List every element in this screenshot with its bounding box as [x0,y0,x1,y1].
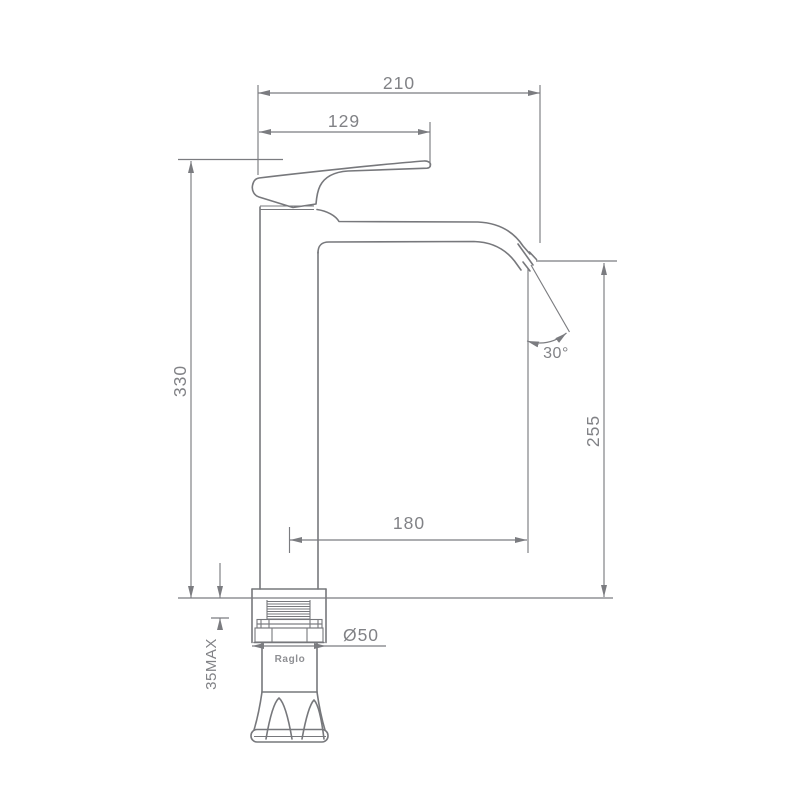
dim-label-210: 210 [383,73,415,93]
faucet-outline: Raglo [251,161,537,742]
dimension-spout-height: 255 [536,261,617,597]
spout-tip-endcap [530,252,537,260]
dimension-total-height: 330 [170,160,283,599]
crown-arch-right [302,700,324,739]
dimension-max-mount-thickness: 35MAX [203,563,229,690]
dimension-spout-angle: 30° [527,265,570,362]
crown-base [251,692,328,742]
dimension-total-width: 210 [258,73,540,243]
dim-label-35max: 35MAX [203,638,220,690]
dim-label-129: 129 [328,111,360,131]
crown-arch-left [266,698,292,739]
mounting-washers [257,620,322,629]
dimension-spout-reach: 180 [290,269,529,553]
dim-label-d50: Ø50 [343,625,379,645]
dim-label-180: 180 [393,513,425,533]
threaded-shank [267,600,310,619]
brand-logo: Raglo [275,654,306,665]
dim-label-330: 330 [170,365,190,397]
handle-outline [252,161,430,208]
technical-drawing-canvas: Raglo 210 129 330 255 180 30° [0,0,800,800]
dim-label-255: 255 [583,415,603,447]
dimension-handle-width: 129 [259,111,430,167]
lock-nut [255,628,323,642]
faucet-spec-drawing-page: Raglo 210 129 330 255 180 30° [0,0,800,800]
spout-under-edge [318,242,521,271]
dim-label-30deg: 30° [543,345,569,362]
spout-outlet-mark [523,262,530,271]
